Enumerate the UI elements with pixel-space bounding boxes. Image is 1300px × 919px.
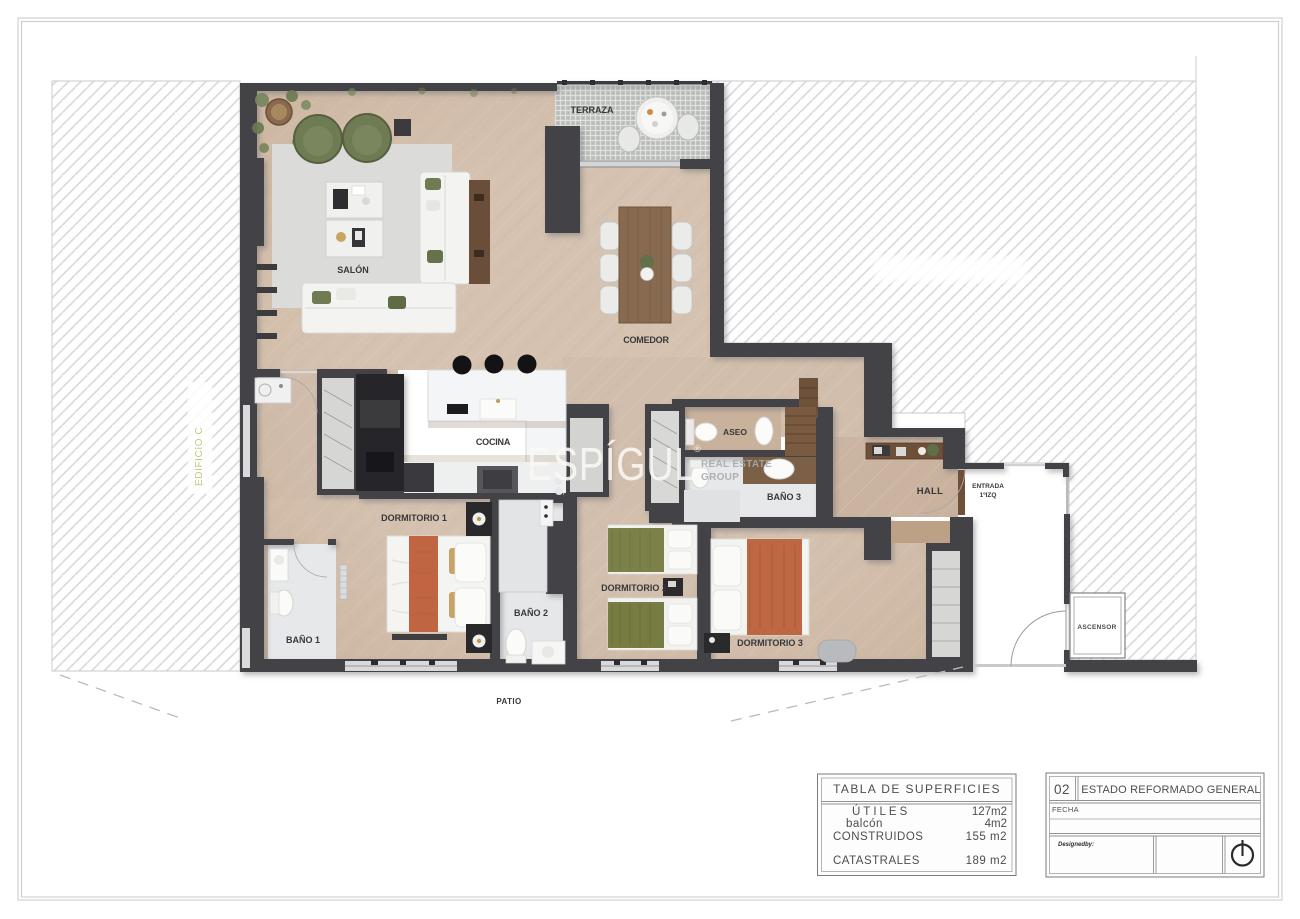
- svg-text:REAL ESTATE: REAL ESTATE: [701, 459, 772, 470]
- svg-text:PATIO: PATIO: [496, 697, 521, 706]
- svg-text:ESPÍGUL: ESPÍGUL: [527, 438, 696, 489]
- svg-text:GROUP: GROUP: [701, 472, 739, 483]
- svg-text:SALÓN: SALÓN: [337, 264, 369, 275]
- svg-text:189 m2: 189 m2: [966, 855, 1007, 867]
- svg-text:HALL: HALL: [917, 486, 944, 497]
- svg-text:EDIFICIO C: EDIFICIO C: [194, 427, 205, 486]
- svg-text:COMEDOR: COMEDOR: [623, 335, 669, 345]
- svg-text:BAÑO 3: BAÑO 3: [767, 492, 801, 502]
- svg-text:CONSTRUIDOS: CONSTRUIDOS: [833, 831, 923, 843]
- svg-text:4m2: 4m2: [985, 818, 1007, 830]
- svg-text:127m2: 127m2: [972, 806, 1007, 818]
- svg-text:®: ®: [694, 444, 701, 454]
- svg-text:DORMITORIO 2: DORMITORIO 2: [601, 583, 667, 593]
- svg-text:BAÑO 1: BAÑO 1: [286, 635, 320, 645]
- svg-text:ENTRADA: ENTRADA: [972, 483, 1004, 490]
- svg-text:TABLA DE SUPERFICIES: TABLA DE SUPERFICIES: [833, 782, 1001, 796]
- svg-text:155 m2: 155 m2: [966, 831, 1007, 843]
- svg-text:BAÑO 2: BAÑO 2: [514, 608, 548, 618]
- svg-text:balcón: balcón: [846, 818, 883, 830]
- svg-text:DORMITORIO 1: DORMITORIO 1: [381, 513, 447, 523]
- svg-text:Designedby:: Designedby:: [1058, 842, 1094, 848]
- svg-text:ESTADO REFORMADO GENERAL: ESTADO REFORMADO GENERAL: [1081, 784, 1260, 796]
- svg-text:1ºIZQ: 1ºIZQ: [980, 492, 997, 499]
- svg-text:02: 02: [1054, 782, 1070, 797]
- svg-text:CATASTRALES: CATASTRALES: [833, 855, 920, 867]
- svg-text:ASCENSOR: ASCENSOR: [1077, 624, 1116, 631]
- svg-text:DORMITORIO 3: DORMITORIO 3: [737, 638, 803, 648]
- svg-text:COCINA: COCINA: [476, 437, 511, 447]
- svg-text:TERRAZA: TERRAZA: [571, 105, 614, 115]
- svg-text:ÚTILES: ÚTILES: [852, 805, 910, 818]
- svg-text:FECHA: FECHA: [1052, 805, 1079, 814]
- svg-text:ASEO: ASEO: [723, 427, 747, 437]
